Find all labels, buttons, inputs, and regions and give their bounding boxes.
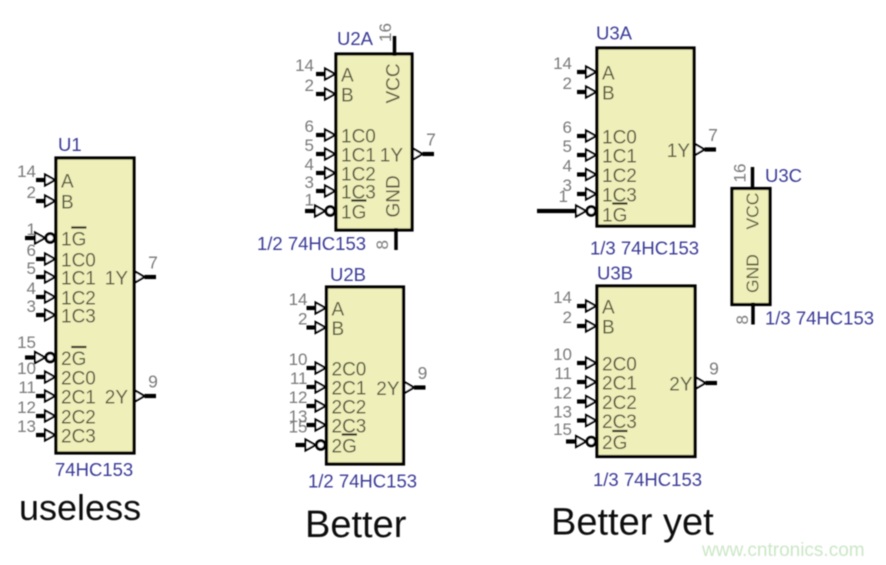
svg-text:1/3 74HC153: 1/3 74HC153 (593, 469, 702, 490)
svg-text:B: B (602, 83, 615, 104)
svg-text:1C1: 1C1 (61, 268, 96, 289)
svg-text:8: 8 (373, 240, 392, 249)
svg-text:GND: GND (743, 254, 763, 293)
svg-text:www.cntronics.com: www.cntronics.com (701, 540, 865, 561)
svg-text:U2B: U2B (330, 264, 366, 285)
svg-text:9: 9 (418, 363, 428, 383)
svg-text:2C0: 2C0 (332, 359, 367, 380)
svg-text:2C1: 2C1 (61, 387, 96, 408)
svg-text:14: 14 (553, 288, 572, 307)
svg-text:3: 3 (305, 173, 314, 192)
svg-text:13: 13 (553, 403, 572, 422)
svg-text:1C1: 1C1 (602, 146, 637, 167)
svg-text:14: 14 (295, 56, 314, 75)
svg-text:1G: 1G (602, 205, 627, 226)
svg-text:1C3: 1C3 (61, 306, 96, 327)
svg-text:U3A: U3A (596, 23, 633, 44)
svg-text:2G: 2G (61, 349, 86, 370)
svg-text:11: 11 (290, 369, 308, 388)
svg-text:10: 10 (289, 350, 308, 369)
svg-text:10: 10 (17, 359, 36, 378)
svg-text:2: 2 (305, 76, 314, 95)
svg-text:16: 16 (731, 164, 750, 183)
svg-text:2G: 2G (332, 436, 357, 457)
svg-text:8: 8 (733, 315, 752, 324)
svg-text:74HC153: 74HC153 (55, 459, 133, 480)
svg-text:16: 16 (376, 23, 395, 42)
svg-text:9: 9 (709, 359, 719, 379)
svg-text:12: 12 (17, 398, 36, 417)
svg-text:2C1: 2C1 (602, 373, 637, 394)
svg-text:2C2: 2C2 (602, 393, 637, 414)
svg-text:6: 6 (563, 118, 572, 137)
svg-text:13: 13 (17, 417, 36, 436)
svg-text:1: 1 (559, 187, 568, 206)
svg-text:3: 3 (27, 297, 36, 316)
svg-text:5: 5 (305, 136, 314, 155)
svg-text:B: B (341, 85, 354, 106)
svg-text:9: 9 (148, 372, 158, 392)
svg-text:useless: useless (19, 487, 141, 528)
svg-text:2: 2 (563, 74, 572, 93)
svg-text:1/2 74HC153: 1/2 74HC153 (308, 471, 417, 492)
svg-text:A: A (602, 63, 615, 84)
svg-text:VCC: VCC (384, 63, 405, 103)
svg-text:12: 12 (289, 388, 308, 407)
svg-text:U3C: U3C (765, 165, 802, 186)
svg-text:2: 2 (27, 183, 36, 202)
svg-text:15: 15 (553, 420, 572, 439)
svg-text:1C0: 1C0 (602, 127, 637, 148)
svg-text:2: 2 (298, 310, 307, 329)
svg-text:A: A (332, 299, 345, 320)
svg-text:1G: 1G (341, 202, 366, 223)
svg-text:1/2 74HC153: 1/2 74HC153 (257, 233, 366, 254)
svg-text:A: A (602, 297, 615, 318)
svg-text:7: 7 (426, 130, 436, 150)
svg-text:14: 14 (17, 162, 36, 181)
svg-text:U3B: U3B (597, 263, 633, 284)
svg-text:5: 5 (27, 259, 36, 278)
svg-text:1/3 74HC153: 1/3 74HC153 (765, 308, 874, 329)
svg-text:2: 2 (563, 308, 572, 327)
svg-text:B: B (602, 317, 615, 338)
svg-text:B: B (61, 192, 74, 213)
svg-text:2C3: 2C3 (602, 412, 637, 433)
svg-text:VCC: VCC (743, 193, 763, 230)
svg-text:1Y: 1Y (105, 268, 129, 289)
svg-text:14: 14 (289, 290, 308, 309)
svg-text:4: 4 (563, 157, 572, 176)
svg-text:U1: U1 (58, 134, 82, 155)
svg-text:1: 1 (27, 220, 36, 239)
svg-text:1Y: 1Y (667, 141, 691, 162)
svg-text:Better: Better (305, 504, 407, 546)
svg-text:1Y: 1Y (380, 145, 404, 166)
svg-text:A: A (61, 171, 74, 192)
svg-text:5: 5 (563, 137, 572, 156)
svg-text:6: 6 (27, 241, 36, 260)
svg-text:1C1: 1C1 (341, 145, 376, 166)
svg-text:15: 15 (289, 418, 308, 437)
svg-text:4: 4 (305, 155, 314, 174)
svg-text:A: A (341, 65, 354, 86)
svg-text:2C0: 2C0 (602, 354, 637, 375)
svg-text:Better yet: Better yet (551, 502, 714, 544)
svg-text:GND: GND (384, 175, 405, 217)
svg-text:6: 6 (305, 117, 314, 136)
svg-text:7: 7 (708, 125, 718, 145)
svg-text:7: 7 (148, 253, 158, 273)
svg-text:2C0: 2C0 (61, 368, 96, 389)
svg-text:11: 11 (554, 364, 572, 383)
svg-text:2C1: 2C1 (332, 378, 367, 399)
svg-text:1C2: 1C2 (602, 166, 637, 187)
svg-text:1: 1 (305, 191, 314, 210)
svg-text:2G: 2G (602, 433, 627, 454)
svg-text:15: 15 (17, 333, 36, 352)
svg-text:U2A: U2A (337, 28, 374, 49)
svg-text:4: 4 (27, 279, 36, 298)
svg-text:1C0: 1C0 (341, 126, 376, 147)
svg-text:1G: 1G (61, 229, 86, 250)
svg-text:B: B (332, 319, 345, 340)
svg-text:2C3: 2C3 (61, 426, 96, 447)
svg-text:1/3 74HC153: 1/3 74HC153 (590, 238, 699, 259)
svg-text:2Y: 2Y (376, 379, 400, 400)
svg-text:14: 14 (553, 54, 572, 73)
svg-text:2C2: 2C2 (332, 397, 367, 418)
svg-text:2Y: 2Y (105, 387, 129, 408)
svg-text:10: 10 (553, 345, 572, 364)
svg-text:2C2: 2C2 (61, 407, 96, 428)
svg-text:12: 12 (553, 384, 572, 403)
svg-text:11: 11 (18, 378, 36, 397)
svg-text:2Y: 2Y (669, 374, 693, 395)
